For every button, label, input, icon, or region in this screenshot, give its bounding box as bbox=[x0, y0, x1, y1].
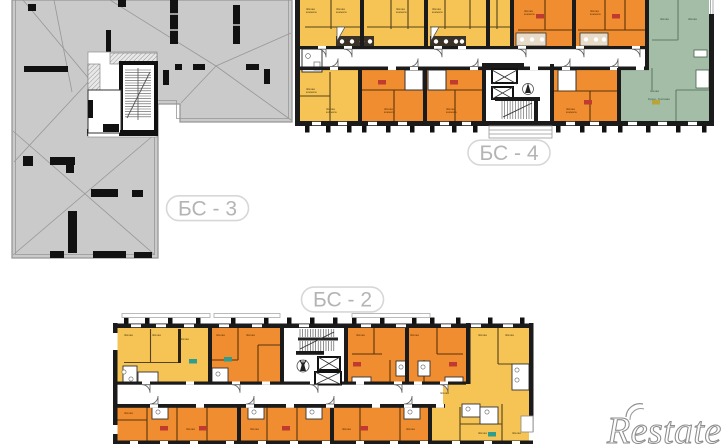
svg-text:Жилая: Жилая bbox=[246, 333, 255, 337]
svg-text:БС - 3: БС - 3 bbox=[178, 197, 237, 220]
svg-text:Жилая: Жилая bbox=[688, 17, 697, 21]
svg-text:Жилая: Жилая bbox=[660, 17, 669, 21]
svg-text:Жилая: Жилая bbox=[216, 333, 225, 337]
svg-text:Жилая: Жилая bbox=[180, 337, 189, 341]
svg-text:Жилая: Жилая bbox=[124, 411, 133, 415]
svg-text:Жилая: Жилая bbox=[478, 431, 487, 435]
svg-text:Жилая: Жилая bbox=[356, 333, 365, 337]
svg-text:Жилая: Жилая bbox=[406, 427, 415, 431]
svg-text:Restate: Restate bbox=[606, 410, 722, 444]
svg-text:комната: комната bbox=[336, 10, 347, 14]
svg-text:Жилая: Жилая bbox=[512, 431, 521, 435]
svg-text:комната: комната bbox=[590, 12, 601, 16]
svg-text:Жилая: Жилая bbox=[152, 333, 161, 337]
svg-text:комната: комната bbox=[384, 110, 395, 114]
svg-text:БС - 2: БС - 2 bbox=[313, 289, 372, 312]
svg-text:комната: комната bbox=[446, 110, 457, 114]
svg-text:Жилая: Жилая bbox=[186, 427, 195, 431]
svg-text:Жилая: Жилая bbox=[440, 391, 449, 395]
svg-text:комната: комната bbox=[326, 110, 337, 114]
svg-text:комната: комната bbox=[432, 10, 443, 14]
svg-text:Кухня - Гостиная: Кухня - Гостиная bbox=[648, 97, 670, 101]
svg-text:комната: комната bbox=[396, 10, 407, 14]
svg-text:БС - 4: БС - 4 bbox=[479, 142, 538, 165]
svg-text:Жилая: Жилая bbox=[250, 427, 259, 431]
svg-text:Жилая: Жилая bbox=[505, 333, 514, 337]
svg-text:Жилая: Жилая bbox=[410, 333, 419, 337]
svg-text:комната: комната bbox=[566, 110, 577, 114]
svg-text:Жилая: Жилая bbox=[124, 333, 133, 337]
svg-text:комната: комната bbox=[306, 10, 317, 14]
svg-text:комната: комната bbox=[306, 90, 317, 94]
svg-text:Жилая: Жилая bbox=[478, 333, 487, 337]
svg-text:комната: комната bbox=[524, 12, 535, 16]
svg-text:Жилая: Жилая bbox=[342, 427, 351, 431]
svg-text:Жилая: Жилая bbox=[650, 89, 659, 93]
